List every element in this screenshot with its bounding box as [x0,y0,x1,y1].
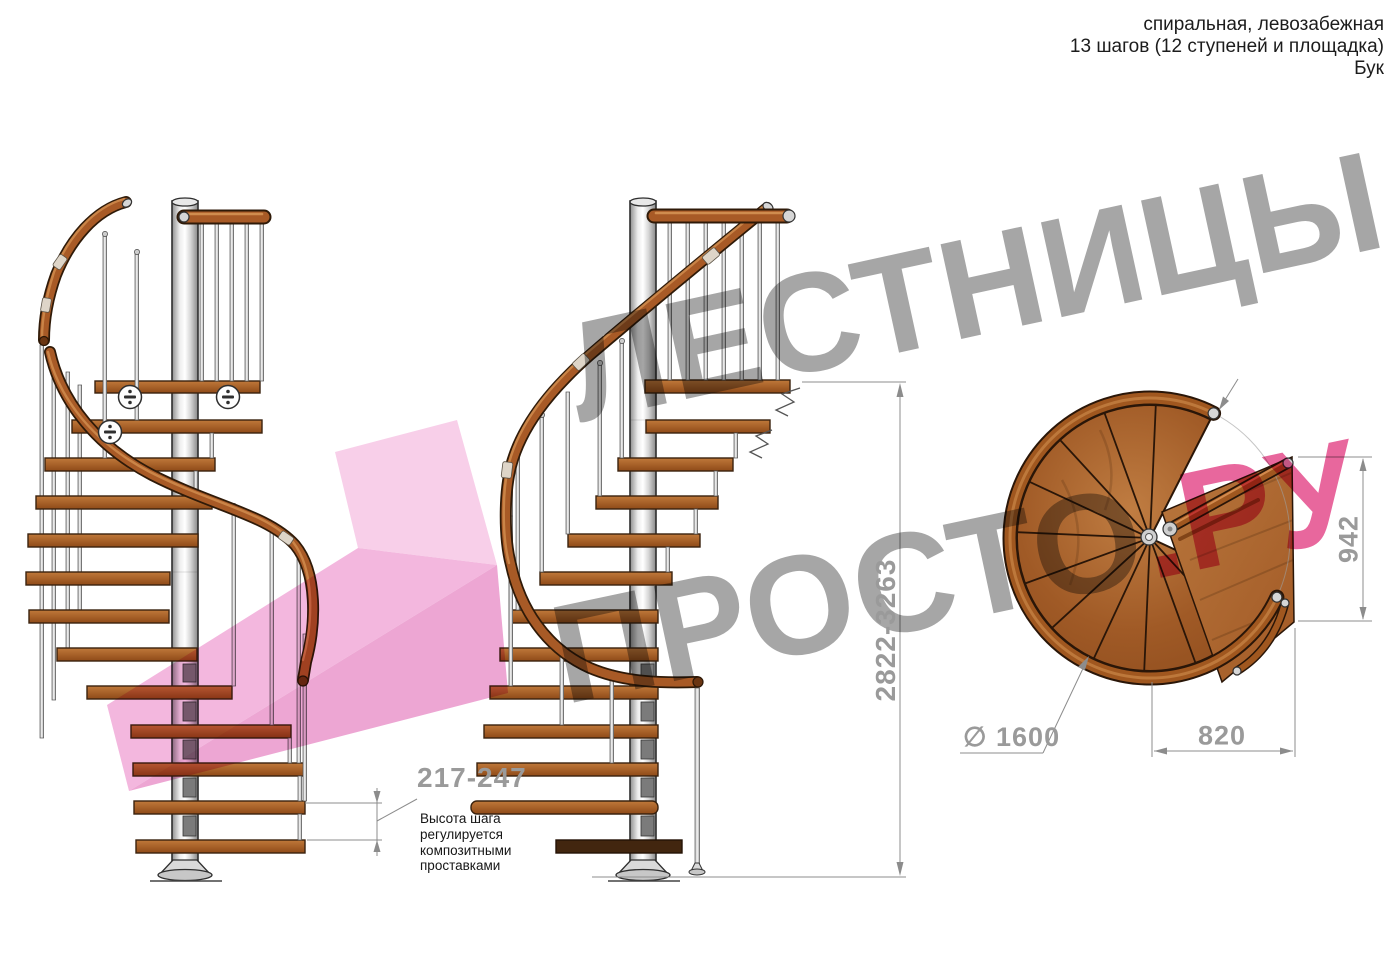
plan-handrail-end-leader [1219,379,1238,410]
left-base-flange [150,860,222,881]
plan-center-pole [1141,529,1157,545]
dimension-value-diameter: ∅ 1600 [963,722,1060,753]
step [29,610,169,623]
title-staircase-type: спиральная, левозабежная [1070,14,1384,36]
step [57,648,197,661]
staircase-plan-view [1010,398,1294,682]
step [484,725,658,738]
step [134,801,305,814]
watermark-arrow-top-flap [335,420,497,565]
staircase-technical-drawing [0,0,1400,975]
middle-base-flange [608,860,680,881]
dimension-step-height [305,788,417,856]
left-mounting-discs [99,386,240,444]
step [568,534,700,547]
step [646,420,770,433]
left-platform-rail [179,212,264,222]
note-line: Высота шага [420,811,511,827]
dimension-value-plan-height: 942 [1334,515,1365,563]
step-height-note: Высота шага регулируется композитными пр… [420,811,511,874]
note-line: проставками [420,858,511,874]
step [26,572,170,585]
step [540,572,672,585]
dimension-value-landing-width: 820 [1198,721,1246,752]
middle-end-baluster [689,688,705,875]
step [36,496,212,509]
technical-drawing-page: ЛЕСТНИЦЫ ПРОСТО.РУ 217-247 2822-3263 942… [0,0,1400,975]
left-handrail-outer [40,197,134,345]
title-material: Бук [1070,58,1384,80]
watermark-arrow [107,420,508,791]
note-line: композитными [420,843,511,859]
drawing-title-block: спиральная, левозабежная 13 шагов (12 ст… [1070,14,1384,80]
step [490,686,658,699]
dimension-value-total-height: 2822-3263 [870,559,902,702]
step [28,534,198,547]
step [136,840,305,853]
step [556,840,682,853]
title-step-count: 13 шагов (12 ступеней и площадка) [1070,36,1384,58]
note-line: регулируется [420,827,511,843]
middle-platform-rail [654,210,795,222]
step [645,380,790,393]
dimension-value-step-height: 217-247 [417,762,527,794]
step [596,496,718,509]
step [618,458,733,471]
